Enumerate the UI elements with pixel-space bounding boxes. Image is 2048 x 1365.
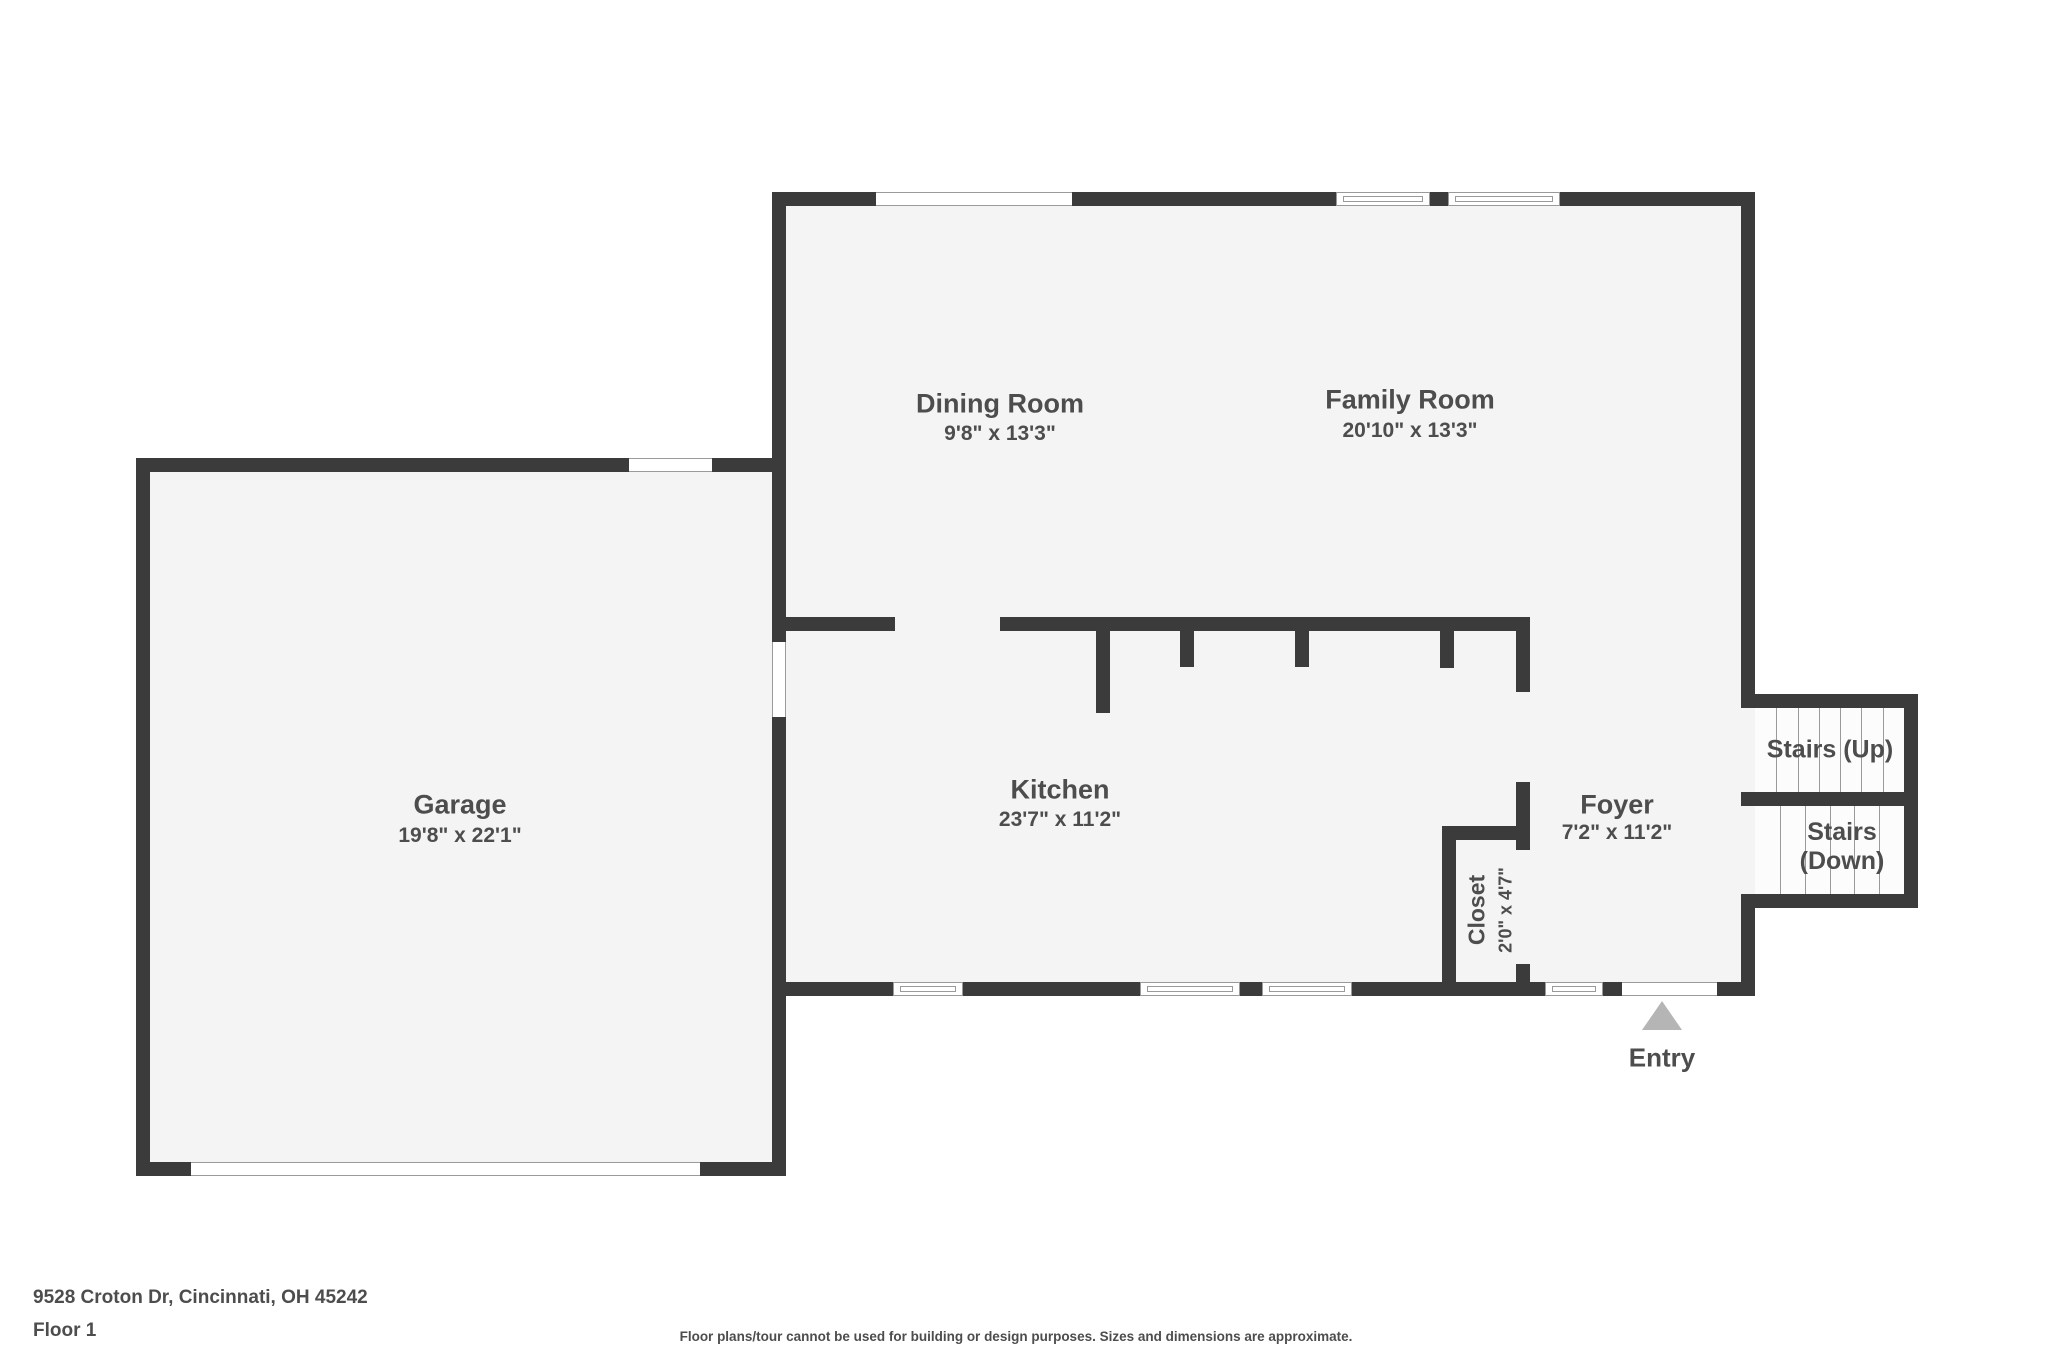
- room-dims-kitchen: 23'7" x 11'2": [999, 808, 1121, 832]
- wall-top: [1560, 192, 1755, 206]
- room-label-dining: Dining Room: [916, 389, 1084, 420]
- stairs-down-label-line1: Stairs: [1800, 818, 1885, 847]
- room-dims-family: 20'10" x 13'3": [1342, 419, 1477, 443]
- wall-top: [1430, 192, 1448, 206]
- kitchen-counter-wall: [1000, 617, 1530, 631]
- kitchen-counter-stub: [1180, 631, 1194, 667]
- room-label-closet: Closet: [1464, 875, 1491, 945]
- stairs-up-label: Stairs (Up): [1767, 736, 1893, 765]
- wall-right: [1741, 192, 1755, 694]
- kitchen-counter-stub: [1295, 631, 1309, 667]
- stairs-wall-top: [1741, 694, 1918, 708]
- entry-label: Entry: [1629, 1043, 1695, 1074]
- wall-top: [1072, 192, 1336, 206]
- wall-left: [772, 717, 786, 1176]
- wall-bottom: [1240, 982, 1262, 996]
- entry-arrow-icon: [1642, 1001, 1682, 1030]
- stairs-up-access-floor: [1741, 708, 1755, 792]
- garage-wall-top: [136, 458, 629, 472]
- room-label-foyer: Foyer: [1580, 790, 1654, 821]
- wall-dining-kitchen: [772, 617, 895, 631]
- window: [1448, 192, 1560, 206]
- window: [1336, 192, 1430, 206]
- address-text: 9528 Croton Dr, Cincinnati, OH 45242: [33, 1287, 368, 1309]
- wall-bottom: [1717, 982, 1755, 996]
- closet-wall-left: [1442, 826, 1456, 982]
- room-dims-garage: 19'8" x 22'1": [398, 824, 521, 848]
- wall-bottom: [963, 982, 1140, 996]
- wall-left: [772, 192, 786, 642]
- floor-label: Floor 1: [33, 1320, 96, 1342]
- wall-kitchen-foyer: [1516, 617, 1530, 692]
- garage-wall-top: [712, 458, 786, 472]
- stairs-wall-bottom: [1741, 894, 1918, 908]
- garage-door-opening: [191, 1162, 700, 1176]
- kitchen-counter-stub: [1096, 631, 1110, 713]
- stairs-wall-divider: [1741, 792, 1918, 806]
- room-dims-dining: 9'8" x 13'3": [944, 422, 1056, 446]
- wall-bottom: [1352, 982, 1545, 996]
- main-floor-area: [786, 206, 1741, 982]
- wall-bottom: [772, 982, 893, 996]
- garage-wall-bottom: [700, 1162, 786, 1176]
- kitchen-counter-stub: [1440, 631, 1454, 668]
- stairs-down-access-floor: [1741, 806, 1755, 894]
- entry-door-opening: [1622, 982, 1717, 996]
- closet-wall-stub: [1516, 964, 1530, 982]
- room-dims-closet: 2'0" x 4'7": [1496, 867, 1517, 953]
- floor-plan: Dining Room 9'8" x 13'3" Family Room 20'…: [0, 0, 2048, 1365]
- garage-wall-bottom: [136, 1162, 191, 1176]
- wall-top: [772, 192, 876, 206]
- stairs-down-label: Stairs (Down): [1800, 818, 1885, 876]
- window: [1545, 982, 1603, 996]
- garage-kitchen-door-opening: [772, 642, 786, 717]
- room-label-garage: Garage: [413, 790, 506, 821]
- window: [893, 982, 963, 996]
- stair-tread-line: [1780, 806, 1781, 894]
- window: [1140, 982, 1240, 996]
- disclaimer-text: Floor plans/tour cannot be used for buil…: [680, 1329, 1353, 1344]
- garage-wall-left: [136, 458, 150, 1176]
- window: [1262, 982, 1352, 996]
- window: [876, 192, 1072, 206]
- stairs-down-label-line2: (Down): [1800, 847, 1885, 876]
- room-dims-foyer: 7'2" x 11'2": [1562, 821, 1673, 845]
- garage-window: [629, 458, 712, 472]
- room-label-family: Family Room: [1325, 385, 1495, 416]
- wall-bottom: [1603, 982, 1622, 996]
- room-label-kitchen: Kitchen: [1010, 775, 1109, 806]
